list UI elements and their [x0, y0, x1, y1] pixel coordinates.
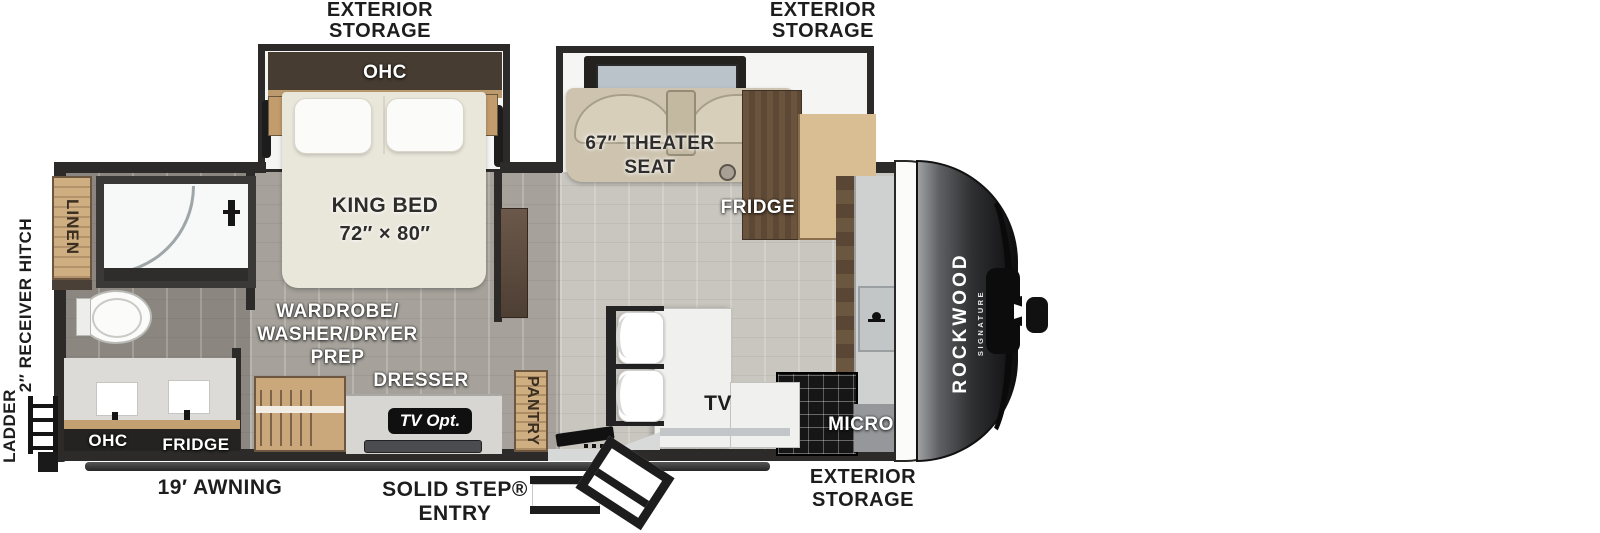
- pillow-left: [294, 98, 372, 154]
- step-divider: [594, 468, 649, 507]
- label-line: WASHER/DRYER: [245, 323, 430, 346]
- ladder-rung: [28, 418, 58, 422]
- pantry-label: PANTRY: [523, 371, 541, 451]
- ladder-rung: [28, 404, 58, 408]
- label-line: ENTRY: [355, 502, 555, 526]
- label-line: WARDROBE/: [245, 300, 430, 323]
- bedroom-ohc-label: OHC: [355, 62, 415, 84]
- label-line: 67″ THEATER: [570, 132, 730, 156]
- ladder-rung: [28, 432, 58, 436]
- exterior-storage-label-bottom-right: EXTERIOR STORAGE: [773, 466, 953, 512]
- exterior-storage-label-top-right: EXTERIOR STORAGE: [733, 0, 913, 42]
- chair-frame-top: [606, 306, 664, 311]
- ladder-rung: [28, 446, 58, 450]
- tv-label: TV: [693, 392, 743, 416]
- king-bed-label: KING BED 72″ × 80″: [300, 192, 470, 248]
- awning-label: 19′ AWNING: [130, 476, 310, 500]
- brand-sub: SIGNATURE: [976, 248, 986, 398]
- linen-base: [52, 280, 92, 290]
- chair-1-back: [616, 316, 640, 358]
- ladder-label: LADDER: [0, 371, 20, 481]
- vanity-counter: [64, 358, 236, 426]
- label-line: 72″ × 80″: [300, 220, 470, 248]
- tv-cabinet-shelf: [660, 428, 790, 436]
- awning-roller: [85, 462, 770, 471]
- label-line: STORAGE: [290, 21, 470, 42]
- bathroom-fridge-label: FRIDGE: [150, 435, 242, 455]
- label-line: SEAT: [570, 156, 730, 180]
- dresser-label: DRESSER: [356, 370, 486, 392]
- pillow-right: [386, 98, 464, 152]
- wardrobe-label: WARDROBE/ WASHER/DRYER PREP: [245, 300, 430, 369]
- floorplan-canvas: EXTERIOR STORAGE EXTERIOR STORAGE EXTERI…: [0, 0, 1600, 533]
- label-line: PREP: [245, 346, 430, 369]
- vanity-sink-right: [168, 380, 210, 414]
- label-line: EXTERIOR: [290, 0, 470, 21]
- wardrobe-shelf: [256, 406, 344, 413]
- label-line: EXTERIOR: [733, 0, 913, 21]
- flat-tv-icon: [364, 440, 482, 453]
- brand-name: ROCKWOOD: [950, 223, 976, 423]
- door-detail-dot: [584, 444, 588, 448]
- top-wall-rear: [54, 162, 266, 173]
- label-line: KING BED: [300, 192, 470, 220]
- tv-optional-badge: TV Opt.: [388, 408, 472, 434]
- tv-cabinet-tall: [654, 308, 732, 448]
- bed-center-seam: [383, 96, 385, 154]
- label-line: SOLID STEP®: [355, 478, 555, 502]
- theater-seat-label: 67″ THEATER SEAT: [570, 132, 730, 180]
- label-line: EXTERIOR: [773, 466, 953, 489]
- top-wall-mid: [500, 162, 562, 173]
- exterior-storage-label-top-left: EXTERIOR STORAGE: [290, 0, 470, 42]
- micro-label: MICRO: [821, 414, 901, 436]
- hitch-coupler-knob: [1026, 297, 1048, 333]
- chair-2-back: [616, 374, 640, 416]
- chair-frame-mid: [606, 364, 664, 369]
- living-fridge-label: FRIDGE: [713, 197, 803, 219]
- label-line: STORAGE: [733, 21, 913, 42]
- wardrobe-rods: [260, 390, 314, 446]
- kitchen-faucet-bar: [868, 319, 885, 322]
- linen-label: LINEN: [62, 182, 82, 272]
- toilet-seat: [92, 298, 142, 338]
- entry-label: SOLID STEP® ENTRY: [355, 478, 555, 526]
- label-line: STORAGE: [773, 489, 953, 512]
- door-detail-dot: [592, 444, 596, 448]
- toilet-tank: [76, 298, 91, 336]
- bathroom-ohc-label: OHC: [78, 431, 138, 451]
- shower-threshold: [104, 268, 248, 281]
- rear-bumper: [38, 452, 58, 472]
- bedroom-sliding-door: [500, 208, 528, 318]
- vanity-sink-left: [96, 382, 138, 416]
- shower-valve-icon: [223, 210, 240, 214]
- step-rail-bottom: [530, 506, 600, 514]
